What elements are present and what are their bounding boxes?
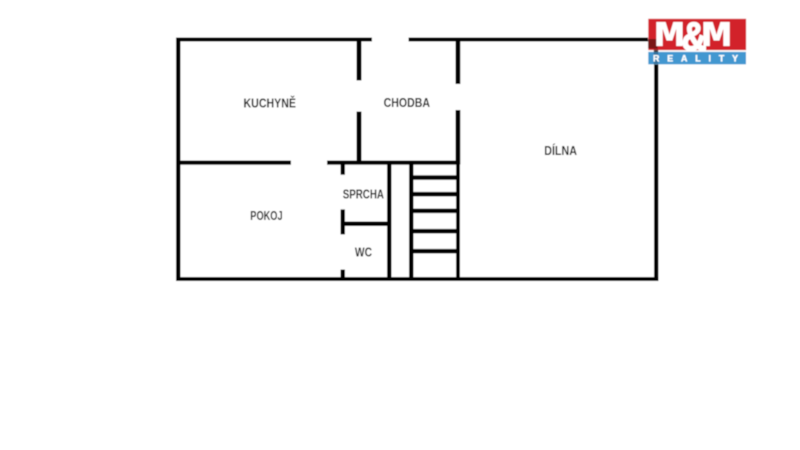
svg-text:&: & bbox=[682, 15, 707, 59]
svg-text:DÍLNA: DÍLNA bbox=[544, 143, 577, 158]
svg-text:WC: WC bbox=[355, 245, 373, 260]
svg-text:CHODBA: CHODBA bbox=[384, 95, 431, 110]
svg-text:POKOJ: POKOJ bbox=[250, 208, 282, 223]
svg-text:SPRCHA: SPRCHA bbox=[343, 187, 385, 202]
svg-text:KUCHYNĚ: KUCHYNĚ bbox=[244, 96, 297, 111]
